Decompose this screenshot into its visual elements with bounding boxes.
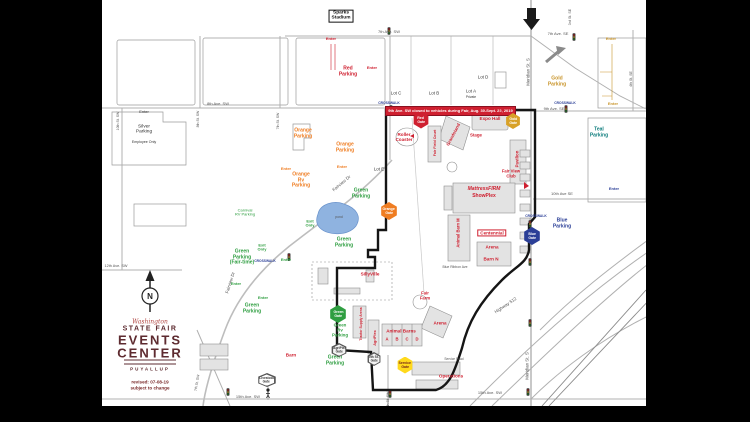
animal-barn-b-label: B (395, 338, 398, 343)
pond-label: pond (335, 216, 343, 220)
animal-barn-a-label: A (385, 338, 388, 343)
administration-expo-hall-label: AdministrationExpo Hall (474, 111, 506, 121)
street-7th-st-sw: 7th St. SW (277, 113, 281, 130)
blue-parking-label: BlueParking (553, 218, 571, 229)
lot-c-label: Lot C (391, 92, 402, 97)
enter-red-1: Enter (326, 37, 336, 41)
animal-barns-label: Animal Barns (386, 328, 416, 333)
green-rv-parking-label: GreenRvParking (332, 324, 348, 339)
street-5th-st-sw: 5th St. SW (387, 392, 391, 406)
animal-barn-m-label: Animal Barn M (457, 218, 462, 247)
exit-only-1: ExitOnly (306, 220, 315, 229)
red-parking-label: RedParking (339, 66, 357, 77)
crosswalk-label-1: CROSSWALK (378, 102, 399, 106)
street-4th-st-se: 4th St. SE (630, 71, 634, 87)
green-parking-label-1: GreenParking (352, 188, 370, 199)
logo-center: CENTER (117, 346, 182, 361)
crosswalk-label-2: CROSSWALK (554, 102, 575, 106)
enter-gold-1: Enter (606, 37, 616, 41)
barn-n-label: Barn N (483, 256, 498, 261)
animal-barn-c-label: C (405, 338, 408, 343)
arena-north-label: Arena (485, 244, 498, 249)
roller-coaster-label: RollerCoaster (395, 132, 412, 142)
letterbox-right (646, 0, 750, 422)
street-10th-st-sw: 10th St. SW (117, 112, 121, 131)
lot-b-label: Lot B (429, 92, 439, 97)
street-blue-ribbon-ave: Blue Ribbon Ave (442, 266, 467, 270)
lot-e-label: Lot E (374, 168, 384, 173)
street-7th-ave-se: 7th Ave. SE (548, 32, 569, 36)
showplex-label: ShowPlex (472, 194, 496, 200)
revision-note: revised: 07-08-19 subject to change (130, 379, 169, 390)
lot-d-label: Lot D (478, 76, 489, 81)
screenshot-stage: N 9th Ave. SW closed to vehicles during … (0, 0, 750, 422)
street-8th-st-sw: 8th St. SW (197, 111, 201, 128)
gold-parking-label: GoldParking (548, 76, 566, 87)
showplex-sponsor-label: MattressFIRM (468, 187, 501, 193)
pavilion-label: Pavilion (516, 151, 521, 168)
crosswalk-label-3: CROSSWALK (525, 215, 546, 219)
barn-label: Barn (286, 352, 296, 357)
street-10th-ave-se: 10th Ave SE (551, 192, 573, 196)
compass-icon: N (142, 270, 158, 312)
stage-label: Stage (470, 134, 482, 139)
logo-washington: Washington (132, 319, 168, 326)
street-meridian-st-n: Meridian St. S (527, 58, 532, 86)
lot-a-private-note: Private (466, 96, 476, 100)
green-parking-fairtime-label: GreenParking(Fair-time) (230, 250, 254, 267)
green-parking-label-4: GreenParking (326, 355, 344, 366)
tractor-supply-arena-label: Tractor Supply Arena (360, 307, 364, 340)
operations-label: Operations (439, 373, 463, 378)
revision-date: revised: 07-08-19 (130, 379, 169, 385)
agriplex-label: AgriPlex (373, 330, 377, 345)
enter-green-1: Enter (281, 258, 291, 262)
enter-red-2: Enter (367, 66, 377, 70)
carnival-rv-parking-label: CarnivalRV Parking (235, 209, 255, 218)
animal-barn-d-label: D (415, 338, 418, 343)
arena-south-label: Arena (433, 320, 446, 325)
revision-subject: subject to change (130, 385, 169, 391)
agriplex-gate-inner: AgriPlexGate (332, 344, 345, 355)
sky-ride-line (412, 118, 424, 293)
street-12th-ave-sw: 12th Ave. SW (105, 264, 128, 268)
enter-orange-2: Enter (337, 165, 347, 169)
enter-gold-2: Enter (608, 102, 618, 106)
crosswalk-label-4: CROSSWALK (254, 260, 275, 264)
orange-parking-label-1: OrangeParking (294, 128, 312, 139)
fifth-st-gate-inner: 5th St.Gate (368, 353, 379, 364)
enter-green-2: Enter (231, 282, 241, 286)
sillyville-label: SillyVille (361, 271, 380, 276)
street-9th-ave-se: 9th Ave. SE (544, 107, 565, 111)
centennial-label: Centennial (477, 229, 506, 236)
fair-view-club-label: Fair ViewClub (502, 169, 520, 178)
lot-a-label: Lot A (466, 90, 476, 95)
letterbox-left (0, 0, 102, 422)
enter-orange-1: Enter (281, 167, 291, 171)
enter-blue: Enter (609, 187, 619, 191)
service-road-label: Service Road (444, 358, 463, 362)
sparks-stadium-label: SparksStadium (329, 10, 354, 23)
green-parking-label-3: GreenParking (243, 303, 261, 314)
enter-green-3: Enter (258, 296, 268, 300)
letterbox-bottom (0, 406, 750, 422)
silver-parking-label: SilverParking (136, 125, 152, 136)
enter-silver: Enter (139, 110, 149, 114)
street-7th-ave-sw: 7th Ave. SW (378, 30, 400, 34)
logo-divider (124, 360, 176, 365)
green-parking-label-2: GreenParking (335, 237, 353, 248)
meridian-down-arrow (523, 8, 540, 30)
street-3rd-st-se: 3rd St. SE (568, 9, 572, 25)
fair-farm-label: FairFarm (420, 291, 430, 300)
logo-puyallup: PUYALLUP (130, 367, 170, 372)
orange-rv-parking-label: OrangeRvParking (292, 173, 310, 190)
street-15th-ave-sw-left: 15th Ave. SW (236, 395, 260, 399)
street-8th-ave-sw: 8th Ave. SW (207, 102, 229, 106)
parking-lot-outlines (112, 38, 646, 226)
street-15th-ave-sw-right: 15th Ave. SW (478, 391, 502, 395)
logo-state-fair: STATE FAIR (123, 326, 178, 333)
fair-field-court-label: Fair Field Court (433, 130, 437, 157)
fairgrounds-map: N 9th Ave. SW closed to vehicles during … (102, 0, 646, 406)
livestock-gate-inner: LivestockGate (259, 374, 275, 385)
teal-parking-label: TealParking (590, 127, 608, 138)
street-meridian-st-s: Meridian St. S (526, 352, 531, 380)
exit-only-2: ExitOnly (258, 244, 267, 253)
silver-parking-note: Employee Only (132, 140, 156, 144)
svg-text:N: N (147, 292, 153, 301)
orange-parking-label-2: OrangeParking (336, 142, 354, 153)
